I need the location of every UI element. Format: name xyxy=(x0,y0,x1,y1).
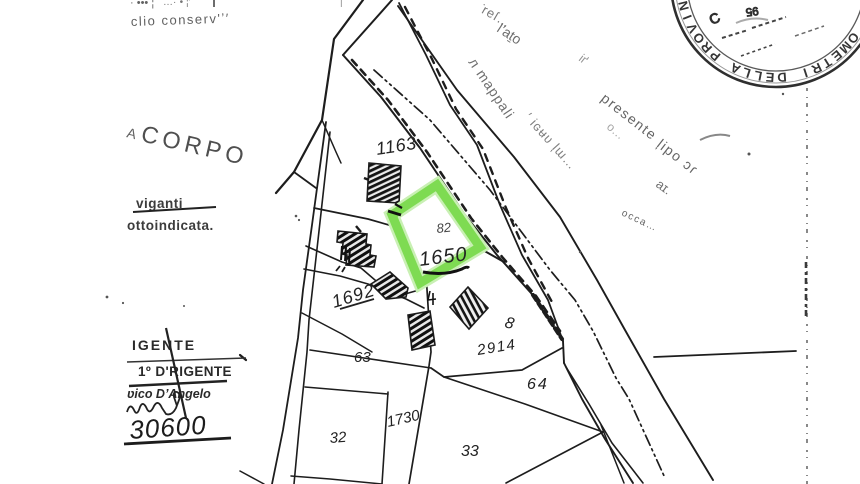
svg-text:E: E xyxy=(765,69,775,85)
svg-text:64: 64 xyxy=(527,376,549,393)
svg-text:82: 82 xyxy=(436,219,453,236)
svg-text:ʋico D’Angelo: ʋico D’Angelo xyxy=(127,387,211,401)
svg-text:IGENTE: IGENTE xyxy=(132,337,196,353)
svg-text:95: 95 xyxy=(745,4,759,18)
svg-text:33: 33 xyxy=(461,443,479,460)
svg-text:63: 63 xyxy=(354,349,371,366)
svg-text:|: | xyxy=(340,0,343,8)
svg-text:…·˙• ¦′: …·˙• ¦′ xyxy=(163,0,191,8)
svg-text:32: 32 xyxy=(329,429,347,447)
svg-text:D: D xyxy=(777,69,787,85)
svg-text:1º DʹRIGENTE: 1º DʹRIGENTE xyxy=(138,364,232,379)
svg-text:· ••• ¦: · ••• ¦ xyxy=(130,0,154,9)
svg-text:ottoindicata.: ottoindicata. xyxy=(127,218,214,233)
